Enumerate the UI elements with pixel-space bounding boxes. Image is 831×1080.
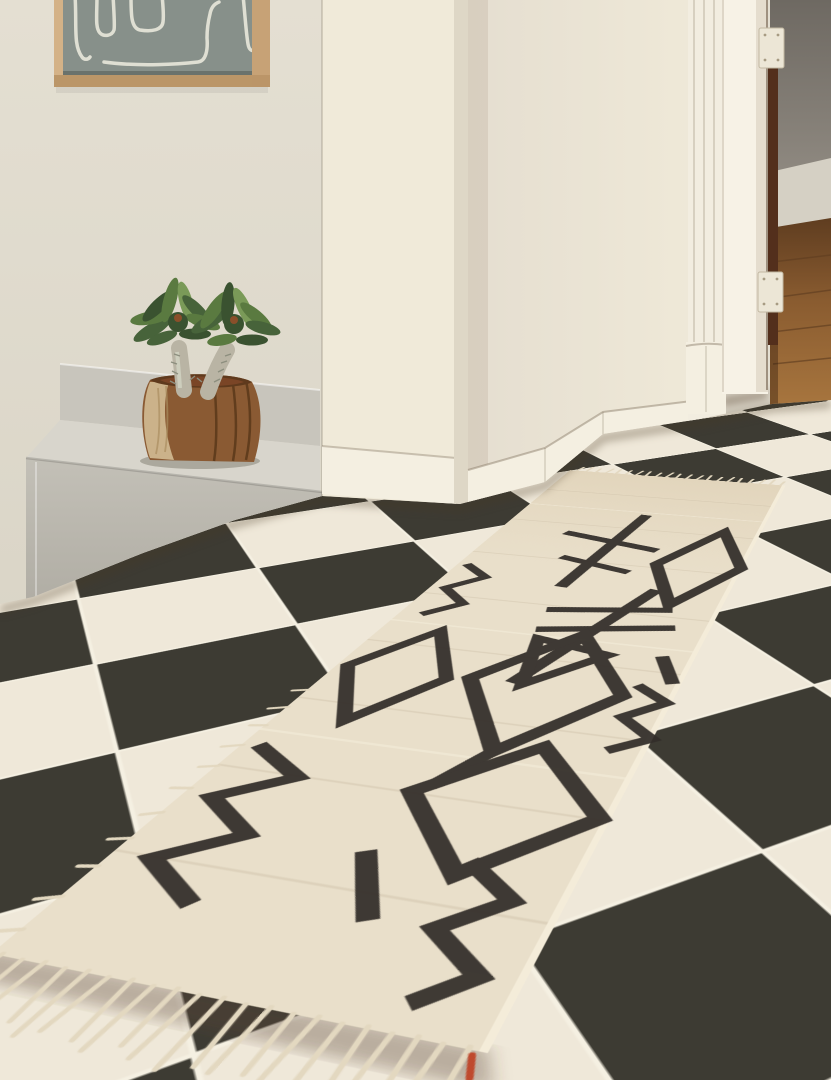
column-corner-return [454, 0, 468, 512]
doorway [686, 0, 784, 422]
artwork-canvas-shadow [63, 71, 252, 75]
corner-shading [468, 0, 488, 506]
column-face [322, 0, 456, 520]
artwork-drop-shadow [56, 87, 268, 93]
artwork-frame-bottom [54, 75, 270, 87]
entryway-photo [0, 0, 831, 1080]
artwork-frame-side [252, 0, 270, 87]
wall-column [322, 0, 468, 520]
door-hinge-bottom [758, 272, 783, 312]
artwork [54, 0, 270, 93]
door-hinge-top [759, 28, 784, 68]
